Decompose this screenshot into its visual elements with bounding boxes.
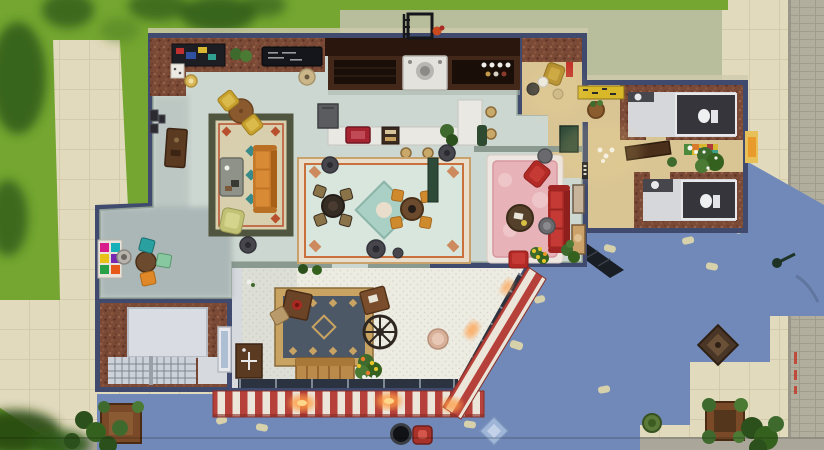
chair-orange[interactable] <box>140 271 156 287</box>
roof-edge-annex <box>582 75 748 80</box>
bath-n-toilet[interactable] <box>698 109 710 123</box>
fire-hydrant[interactable] <box>413 426 432 444</box>
white-card-decor[interactable] <box>171 64 184 78</box>
blush-round-chair[interactable] <box>428 329 448 349</box>
green-armchair[interactable] <box>219 207 246 235</box>
skylight-panel <box>128 308 207 357</box>
storefront-windows-south <box>238 379 458 388</box>
beige-pouf[interactable] <box>299 69 315 85</box>
bar-back-wall <box>325 38 520 56</box>
bath-s-tank <box>713 195 720 208</box>
green-screen[interactable] <box>428 158 438 202</box>
entry-door[interactable] <box>236 344 262 378</box>
basket-plant[interactable] <box>588 100 604 118</box>
red-curb-marks <box>794 352 797 394</box>
bathroom-south <box>643 172 736 221</box>
coffee-bar <box>325 38 520 95</box>
roof-edge-north <box>148 28 588 33</box>
wooden-bench[interactable] <box>296 358 354 380</box>
bath-n-tank <box>711 110 718 123</box>
orange-sofa[interactable] <box>253 145 277 213</box>
floor-lamp[interactable] <box>185 75 197 87</box>
lit-doorway-core <box>748 137 756 157</box>
red-armchair-2[interactable] <box>509 251 528 268</box>
wall-mirror[interactable] <box>218 327 231 372</box>
brick-corner-ne <box>522 38 582 62</box>
green-bin[interactable] <box>643 414 661 432</box>
dark-round-table[interactable] <box>507 205 533 231</box>
wagon-wheel[interactable] <box>364 316 396 348</box>
abstract-painting[interactable] <box>172 44 225 66</box>
bar-floor-shadow <box>328 90 520 95</box>
game-viewport <box>0 0 824 450</box>
menu-board[interactable] <box>262 47 322 66</box>
chair-green[interactable] <box>156 253 172 268</box>
lattice-windows[interactable] <box>108 356 227 385</box>
espresso-machine[interactable] <box>403 56 447 90</box>
bath-s-basin <box>651 181 659 189</box>
hall-plant-small[interactable] <box>667 157 677 167</box>
mini-fridge[interactable] <box>318 104 338 128</box>
nook-table[interactable] <box>136 252 156 272</box>
bath-n-basin <box>635 94 642 101</box>
bathroom-north <box>628 92 736 143</box>
pastry-display[interactable] <box>382 127 399 144</box>
pouf-grey[interactable] <box>117 250 131 264</box>
bath-s-door[interactable] <box>650 172 670 179</box>
curb-line <box>0 437 824 439</box>
chair-teal[interactable] <box>138 237 155 253</box>
bath-s-toilet[interactable] <box>700 194 712 208</box>
screenshot-stage <box>0 0 824 450</box>
round-trash-can[interactable] <box>390 423 412 445</box>
bar-shelves-left <box>334 60 396 84</box>
skylight-room <box>100 303 231 387</box>
console-table[interactable] <box>165 128 188 167</box>
coffee-table[interactable] <box>220 158 243 196</box>
green-trash-can[interactable] <box>477 125 487 146</box>
cash-register[interactable] <box>346 127 370 143</box>
